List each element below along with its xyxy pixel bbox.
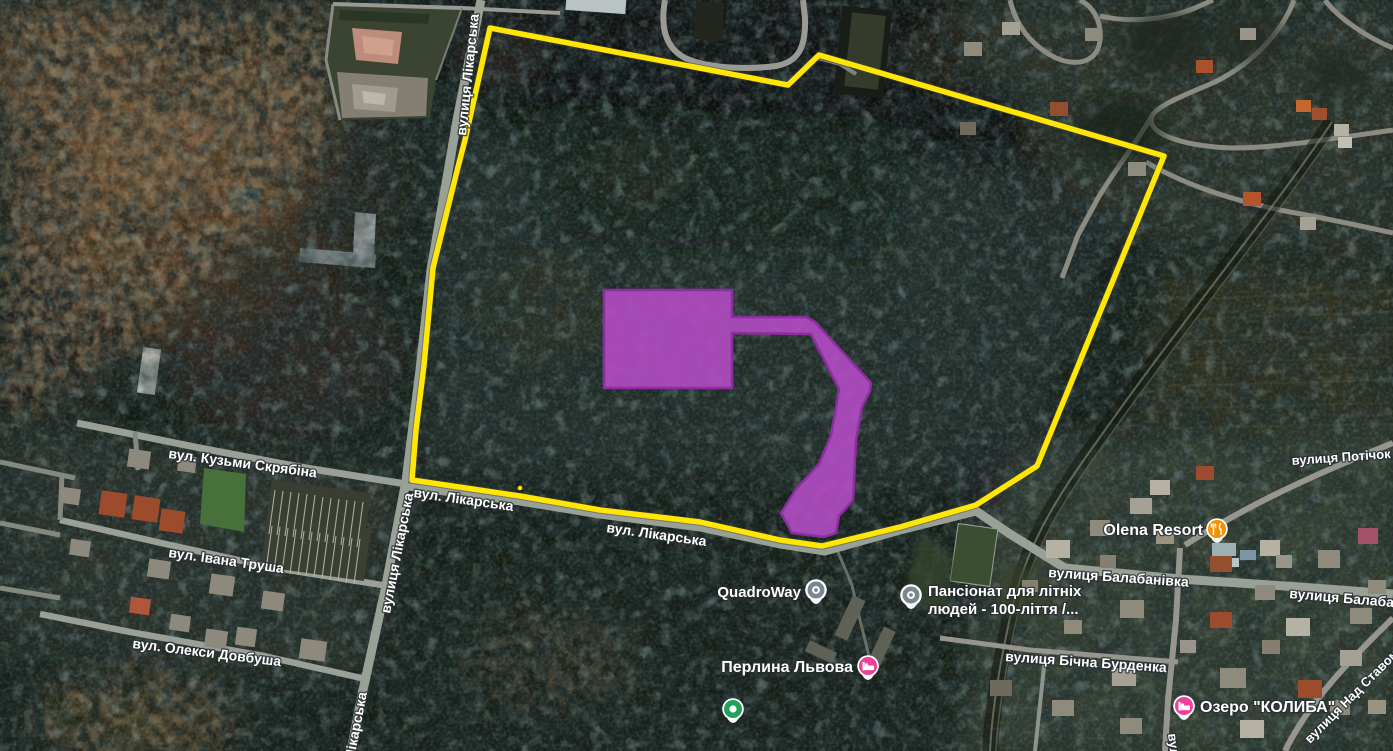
svg-text:QuadroWay: QuadroWay (717, 584, 801, 601)
svg-text:Перлина Львова: Перлина Львова (721, 659, 853, 676)
svg-text:Озеро "КОЛИБА": Озеро "КОЛИБА" (1200, 699, 1335, 716)
svg-text:Olena Resort: Olena Resort (1103, 522, 1203, 539)
svg-text:Пансіонат для літніх: Пансіонат для літніх (928, 583, 1082, 600)
svg-text:людей - 100-ліття /...: людей - 100-ліття /... (928, 601, 1079, 618)
